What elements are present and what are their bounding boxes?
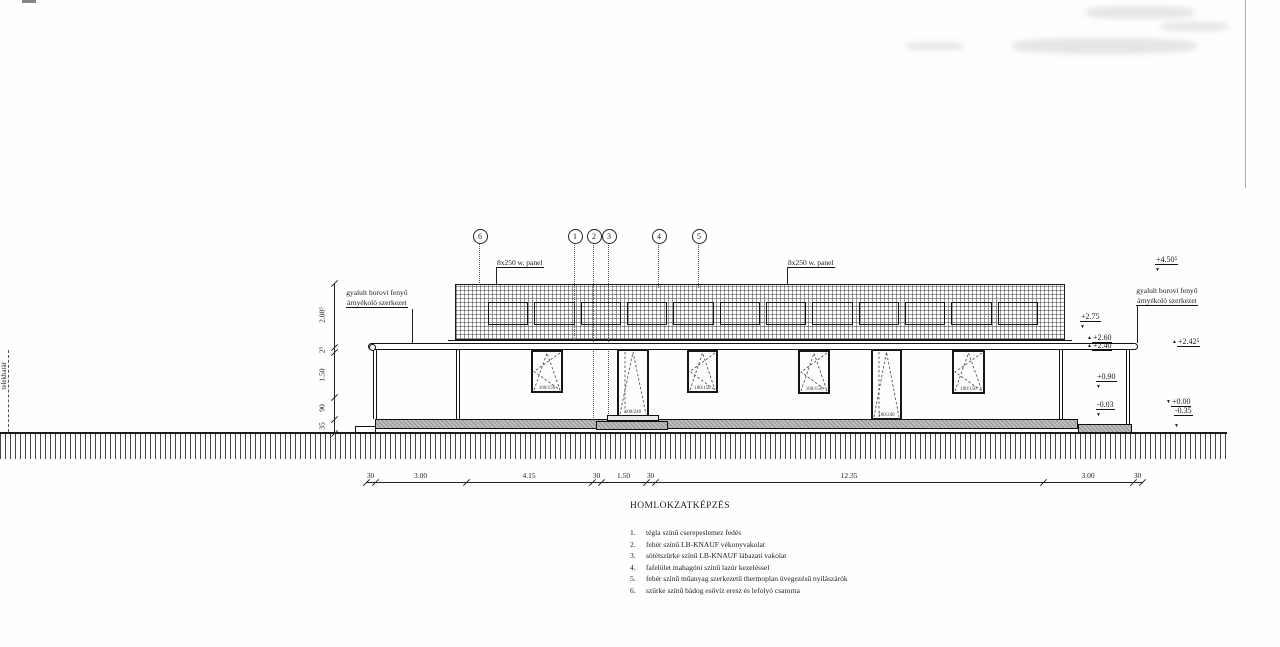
reference-bubble: 5	[692, 229, 707, 244]
level-marker-275: +2.75 ▼	[1080, 312, 1101, 331]
pergola-post-left	[373, 350, 377, 419]
level-value: +2.40	[1092, 341, 1113, 351]
legend-number: 4.	[630, 563, 646, 572]
legend-item: 6.szürke színű bádog esővíz eresz és lef…	[630, 586, 848, 595]
ground-hatch	[0, 434, 1227, 459]
roof-panel	[720, 302, 760, 325]
level-triangle-icon: ▼	[1155, 268, 1160, 273]
dimension-value: 2.08⁵	[318, 307, 327, 323]
bubble-leader-line	[658, 243, 659, 288]
level-triangle-ground: ▼	[1174, 421, 1179, 431]
reference-bubble: 1	[568, 229, 583, 244]
beam-end-cap	[369, 344, 376, 351]
legend-text: sötétszürke színű LB-KNAUF lábazati vako…	[646, 551, 786, 560]
roof-panel	[488, 302, 528, 325]
level-triangle-icon: ▼	[1080, 325, 1085, 330]
reference-bubble: 6	[473, 229, 488, 244]
site-boundary-label: telekhatár	[0, 362, 8, 390]
drawing-title: HOMLOKZATKÉPZÉS	[630, 501, 848, 511]
leader-line	[1137, 306, 1138, 343]
reference-bubble: 4	[652, 229, 667, 244]
label-line1: gyalult borovi fenyő	[1136, 286, 1197, 295]
opening-sash-icon	[954, 352, 983, 392]
bubble-leader-line	[479, 243, 480, 283]
roof-panel	[998, 302, 1038, 325]
plinth-right-extension	[1078, 424, 1132, 433]
legend-number: 1.	[630, 528, 646, 537]
opening-window: 100/150	[687, 350, 718, 393]
level-value: +0.90	[1096, 372, 1117, 382]
label-text: 8x250 w. panel	[787, 258, 835, 268]
opening-size-label: 100/150	[954, 387, 983, 392]
corner-post-right	[1059, 349, 1063, 419]
legend-number: 2.	[630, 540, 646, 549]
opening-size-label: 100/150	[689, 386, 716, 391]
pergola-beam	[368, 343, 1138, 350]
legend-item: 3.sötétszürke színű LB-KNAUF lábazati va…	[630, 551, 848, 560]
legend-list: 1.tégla színű cserepeslemez fedés2.fehér…	[630, 528, 848, 595]
dimension-value: 30	[647, 471, 655, 480]
panel-label-left: 8x250 w. panel	[496, 258, 544, 268]
level-value: +2.42⁵	[1177, 337, 1200, 347]
dimension-value: 1.50	[617, 471, 630, 480]
scan-smudge	[1012, 38, 1197, 54]
plinth-left-step	[355, 426, 376, 433]
site-boundary-line	[8, 350, 9, 432]
dimension-line	[366, 482, 1142, 483]
legend-item: 5.fehér színű műanyag szerkezetű thermop…	[630, 574, 848, 583]
door-step-lower	[596, 421, 668, 430]
bubble-leader-line	[608, 243, 609, 420]
shade-structure-label-right: gyalult borovi fenyő árnyékoló szerkezet	[1136, 286, 1198, 306]
legend-number: 3.	[630, 551, 646, 560]
dimension-value: 2⁵	[318, 346, 327, 352]
legend-number: 6.	[630, 586, 646, 595]
roof-panel	[673, 302, 713, 325]
dimension-value: 30	[1134, 471, 1142, 480]
bubble-leader-line	[698, 243, 699, 288]
dimension-value: 35	[318, 422, 327, 430]
level-triangle-icon: ▼	[1096, 413, 1101, 418]
label-line2: árnyékoló szerkezet	[1136, 296, 1198, 306]
legend-item: 2.fehér színű LB-KNAUF vékonyvakolat	[630, 540, 848, 549]
roof-panel	[905, 302, 945, 325]
level-marker-000-035: ▼+0.00 -0.35	[1166, 398, 1193, 416]
roof-panel	[951, 302, 991, 325]
level-value: -0.35	[1174, 406, 1193, 416]
level-marker-003: -0.03 ▼	[1096, 400, 1115, 419]
scan-smudge	[1160, 22, 1230, 31]
legend-text: fehér színű LB-KNAUF vékonyvakolat	[646, 540, 765, 549]
scan-smudge	[905, 42, 965, 50]
dimension-line	[334, 283, 335, 433]
bubble-leader-line	[574, 243, 575, 340]
roof-panel-row	[488, 302, 1038, 325]
label-line2: árnyékoló szerkezet	[346, 298, 408, 308]
legend-text: tégla színű cserepeslemez fedés	[646, 528, 741, 537]
pergola-post-right	[1126, 350, 1130, 424]
dimension-value: 3.00	[414, 471, 427, 480]
dimension-value: 4.15	[522, 471, 535, 480]
scan-smudge	[1085, 6, 1195, 19]
legend-block: HOMLOKZATKÉPZÉS 1.tégla színű cserepesle…	[630, 501, 848, 598]
opening-window: 100/150	[952, 350, 985, 394]
scan-mark	[22, 0, 36, 3]
dimension-value: 90	[318, 404, 327, 412]
legend-text: szürke színű bádog esővíz eresz és lefol…	[646, 586, 800, 595]
level-triangle-icon: ▼	[1174, 424, 1179, 429]
level-marker-450: +4.50⁵ ▼	[1155, 255, 1178, 274]
leader-line	[412, 309, 413, 343]
level-marker-090: +0.90 ▼	[1096, 372, 1117, 391]
level-marker-242: ▲+2.42⁵	[1172, 337, 1200, 347]
roof-panel	[766, 302, 806, 325]
dimension-value: 12.35	[841, 471, 858, 480]
dimension-tick	[1139, 479, 1146, 486]
opening-door: 100/240	[871, 349, 902, 420]
legend-item: 4.fafelület mahagóni színű lazúr kezelés…	[630, 563, 848, 572]
roof-panel	[627, 302, 667, 325]
opening-sash-icon	[800, 352, 828, 392]
roof-panel	[581, 302, 621, 325]
roof-panel	[859, 302, 899, 325]
reference-bubble: 2	[587, 229, 602, 244]
leader-line	[496, 268, 497, 284]
leader-line	[787, 268, 788, 284]
opening-door: 100/240	[617, 349, 649, 417]
legend-text: fafelület mahagóni színű lazúr kezelésse…	[646, 563, 769, 572]
roof-panel	[812, 302, 852, 325]
plinth-main	[375, 419, 1078, 429]
opening-window: 100/150	[531, 350, 563, 393]
dimension-value: 30	[367, 471, 375, 480]
shade-structure-label-left: gyalult borovi fenyő árnyékoló szerkezet	[346, 288, 408, 308]
panel-label-right: 8x250 w. panel	[787, 258, 835, 268]
bubble-leader-line	[593, 243, 594, 418]
opening-sash-icon	[619, 351, 647, 415]
roof-tile-band	[455, 284, 1065, 340]
legend-number: 5.	[630, 574, 646, 583]
opening-size-label: 100/150	[800, 387, 828, 392]
elevation-drawing-sheet: telekhatár 100/150100/240100/150100/1501…	[0, 0, 1280, 647]
opening-sash-icon	[873, 351, 900, 418]
opening-size-label: 100/150	[533, 386, 561, 391]
roof-panel	[534, 302, 574, 325]
level-marker-260-240: ▲+2.60 ▲+2.40	[1087, 334, 1112, 350]
corner-post-left	[456, 349, 460, 419]
legend-item: 1.tégla színű cserepeslemez fedés	[630, 528, 848, 537]
level-triangle-icon: ▼	[1096, 385, 1101, 390]
scan-edge-line	[1245, 0, 1246, 188]
label-line1: gyalult borovi fenyő	[346, 288, 407, 297]
dimension-value: 3.00	[1081, 471, 1094, 480]
dimension-value: 30	[593, 471, 601, 480]
legend-text: fehér színű műanyag szerkezetű thermopla…	[646, 574, 848, 583]
dimension-value: 1.50	[318, 368, 327, 381]
opening-size-label: 100/240	[873, 413, 900, 418]
label-text: 8x250 w. panel	[496, 258, 544, 268]
level-value: -0.03	[1096, 400, 1115, 410]
opening-window: 100/150	[798, 350, 830, 394]
reference-bubble: 3	[602, 229, 617, 244]
level-value: +2.75	[1080, 312, 1101, 322]
level-value: +4.50⁵	[1155, 255, 1178, 265]
